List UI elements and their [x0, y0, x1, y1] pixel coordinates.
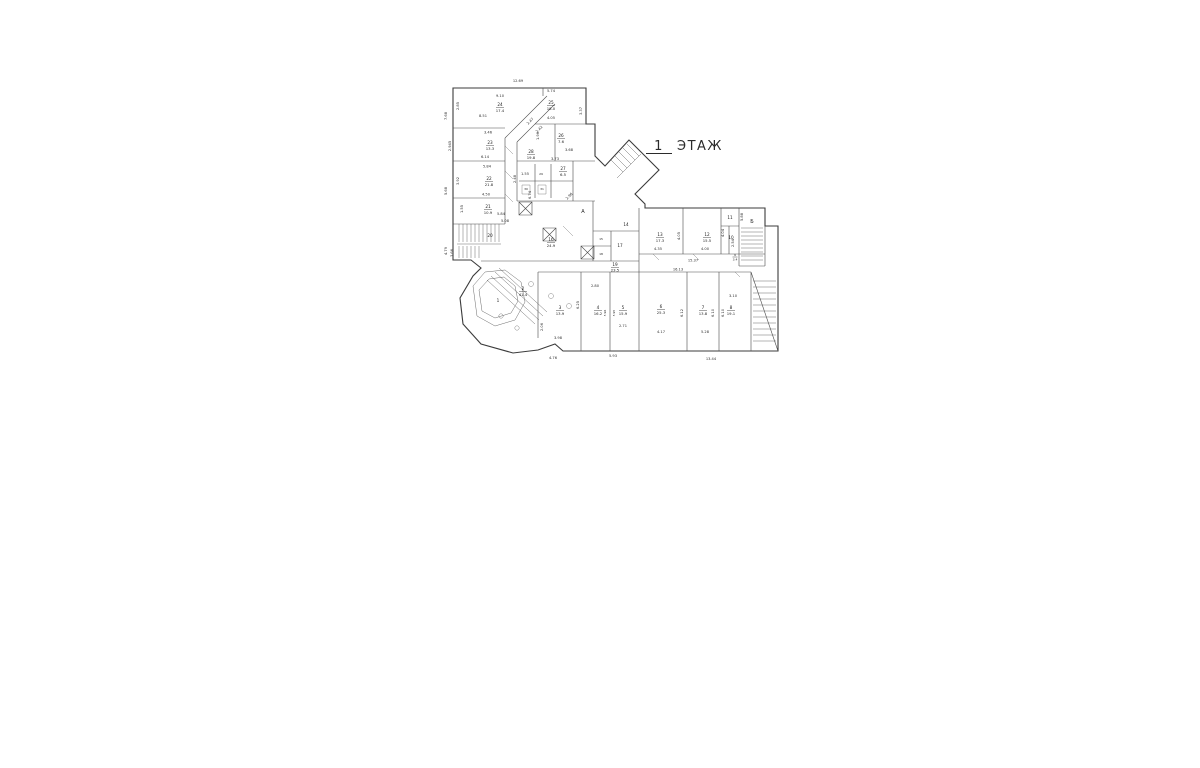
room-number: 11	[727, 215, 733, 220]
room-number: 4	[597, 305, 600, 310]
room-area: 18.0	[547, 106, 556, 111]
room-number: 26	[558, 133, 564, 138]
room-area: 41.4	[519, 292, 528, 297]
dimension-label: 2.06	[540, 322, 544, 331]
dimension-label: 6.14	[481, 155, 490, 159]
room-area: 21.8	[485, 182, 494, 187]
room-number: 2	[522, 286, 525, 291]
dimension-label: 7.68	[444, 111, 448, 120]
dimension-label: 5.95	[612, 310, 616, 317]
room-number: 3	[559, 305, 562, 310]
stair-letter: А	[581, 209, 585, 215]
room-label-31: 31	[540, 187, 544, 191]
dimension-label: 13.44	[706, 357, 717, 361]
dimension-label: 5.88	[740, 212, 744, 221]
room-label-4: 4 16.2	[594, 305, 603, 316]
room-label-17: 17	[617, 243, 623, 248]
floor-title: 1 ЭТАЖ	[646, 139, 723, 154]
dimension-label: 6.10	[721, 308, 725, 317]
room-number: 18	[599, 252, 603, 256]
dimension-label: 3.68	[565, 148, 574, 152]
dimension-label: 1.55	[521, 172, 529, 176]
room-number: 14	[623, 222, 629, 227]
dimension-label: 4.04	[721, 228, 725, 237]
room-number: 15	[599, 237, 603, 241]
dimension-label: 4.76	[549, 356, 558, 360]
room-area: 17.3	[656, 238, 665, 243]
room-label-1: 1	[497, 298, 500, 303]
stair-20-treads	[457, 224, 501, 258]
room-number: 16	[548, 237, 554, 242]
room-number: 21	[485, 204, 491, 209]
room-label-25: 25 18.0	[547, 100, 556, 111]
room-label-5: 5 15.9	[619, 305, 628, 316]
dimension-label: 4.05	[677, 232, 681, 240]
room-number: 13	[657, 232, 663, 237]
room-label-7: 7 13.8	[699, 305, 708, 316]
room-number: 12	[704, 232, 710, 237]
floor-number: 1	[654, 139, 664, 154]
dimension-label: 2.80	[591, 284, 600, 288]
room-label-26: 26 7.6	[557, 133, 565, 144]
dimension-label: 2.47	[526, 117, 534, 125]
room-label-14: 14	[623, 222, 629, 227]
room-area: 25.3	[657, 310, 666, 315]
door-swings	[505, 146, 740, 277]
room-label-23: 23 13.3	[486, 140, 495, 151]
stair-label-A: А	[581, 209, 585, 215]
dimension-label: 2.945	[448, 141, 452, 151]
room-label-13: 13 17.3	[656, 232, 665, 243]
dimension-label: 3.98	[554, 336, 563, 340]
room-number: 25	[548, 100, 554, 105]
dimension-label: 5.84	[497, 212, 506, 216]
room-number: 24	[497, 102, 503, 107]
stair-A-treads	[611, 144, 641, 178]
floor-plan-sheet: 1 2 41.4 3 13.9 4 16.2 5 15.9	[443, 76, 788, 366]
room-label-8: 8 19.1	[727, 305, 736, 316]
room-number: 19	[612, 262, 618, 267]
room-area: 13.3	[486, 146, 495, 151]
floor-word: ЭТАЖ	[677, 139, 723, 154]
dimension-label: 3.10	[729, 294, 738, 298]
dimension-label: 3.46	[484, 131, 493, 135]
room-label-27: 27 6.5	[559, 166, 567, 177]
room-label-20: 20	[487, 233, 493, 238]
dimension-label: 5.96	[603, 310, 607, 317]
room-number: 7	[702, 305, 705, 310]
room-number: 28	[528, 149, 534, 154]
dimension-label: 2.71	[619, 324, 627, 328]
dimension-label: 5.68	[444, 186, 448, 195]
room-area: 10.9	[484, 210, 493, 215]
scanned-drawing-page: 1 2 41.4 3 13.9 4 16.2 5 15.9	[0, 0, 1200, 768]
dimension-label: 4.35	[654, 247, 662, 251]
dimension-label: 15.37	[688, 259, 698, 263]
dimension-label: 16.13	[673, 268, 683, 272]
room-number: 23	[487, 140, 493, 145]
room-area: 19.8	[527, 155, 536, 160]
dimension-label: 4.00	[701, 247, 710, 251]
room-label-28: 28 19.8	[527, 149, 536, 160]
dimension-label: 4.17	[657, 330, 665, 334]
dimension-label: 6.12	[680, 309, 684, 317]
room-area: 13.8	[699, 311, 708, 316]
stair-letter: Б	[750, 219, 754, 225]
dimension-label: 3.37	[579, 107, 583, 115]
dimension-label: 5.28	[701, 330, 710, 334]
room-number: 5	[622, 305, 625, 310]
room-label-18: 18	[599, 252, 603, 256]
room-label-16: 16 24.9	[547, 237, 556, 248]
dimension-label: 3.66	[450, 248, 454, 257]
room-label-6: 6 25.3	[657, 304, 666, 315]
dimension-label: 5.08	[501, 219, 510, 223]
room-label-29: 29	[539, 172, 543, 176]
room-label-12: 12 15.5	[703, 232, 712, 243]
dimension-label: 4.50	[482, 193, 491, 197]
dimension-label: 2.48	[513, 174, 517, 183]
room-area: 23.5	[611, 268, 620, 273]
room-number: 20	[487, 233, 493, 238]
room-label-19: 19 23.5	[611, 262, 620, 273]
room-label-11: 11	[727, 215, 733, 220]
dimension-label: 3.92	[456, 177, 460, 185]
room-label-24: 24 17.4	[496, 102, 505, 113]
dimension-label: 8.51	[479, 114, 487, 118]
room-number: 22	[486, 176, 492, 181]
room-area: 6.5	[560, 172, 567, 177]
dimension-label: 2.54	[731, 238, 735, 247]
room-number: 30	[524, 187, 528, 191]
dimension-label: 9.10	[496, 94, 505, 98]
room-number: 8	[730, 305, 733, 310]
room-area: 7.6	[558, 139, 565, 144]
stair-label-B: Б	[750, 219, 754, 225]
room-area: 15.9	[619, 311, 628, 316]
room-number: 17	[617, 243, 623, 248]
dimension-label: 3.73	[551, 157, 559, 161]
dimension-label: 2.96	[565, 192, 574, 201]
room-area: 19.1	[727, 311, 736, 316]
room-area: 17.4	[496, 108, 505, 113]
stair-southeast-treads	[753, 281, 776, 341]
room-number: 31	[540, 187, 544, 191]
room-area: 15.5	[703, 238, 712, 243]
dimension-label: 6.74	[528, 190, 532, 199]
room-area: 24.9	[547, 243, 556, 248]
dimension-label: 4.05	[547, 116, 555, 120]
dimension-label: 12.69	[513, 79, 524, 83]
room-number: 27	[560, 166, 566, 171]
dimension-label: 5.84	[483, 165, 492, 169]
dimension-label: 5.74	[547, 89, 556, 93]
room-label-3: 3 13.9	[556, 305, 565, 316]
room-number: 6	[660, 304, 663, 309]
dimension-label: 6.25	[576, 301, 580, 309]
room-label-30: 30	[524, 187, 528, 191]
dimension-label: 4.79	[444, 246, 448, 255]
room-area: 13.9	[556, 311, 565, 316]
room-area: 16.2	[594, 311, 603, 316]
room-number: 1	[497, 298, 500, 303]
dimension-labels: 12.69 9.10 2.85 8.51 7.68 2.945 3.46 6.1…	[444, 79, 744, 361]
dimension-label: 1.55	[460, 205, 464, 213]
room-label-15: 15	[599, 237, 603, 241]
room-label-22: 22 21.8	[485, 176, 494, 187]
stair-B-treads	[741, 228, 763, 260]
room-label-21: 21 10.9	[484, 204, 493, 215]
floor-plan: 1 2 41.4 3 13.9 4 16.2 5 15.9	[443, 76, 788, 366]
room-number: 9	[734, 253, 736, 257]
room-number: 29	[539, 172, 543, 176]
room-area: 3.4	[733, 258, 738, 262]
dimension-label: 5.93	[609, 354, 617, 358]
dimension-label: 6.10	[711, 308, 715, 317]
dimension-label: 1.96	[536, 131, 540, 140]
dimension-label: 2.85	[456, 102, 460, 110]
